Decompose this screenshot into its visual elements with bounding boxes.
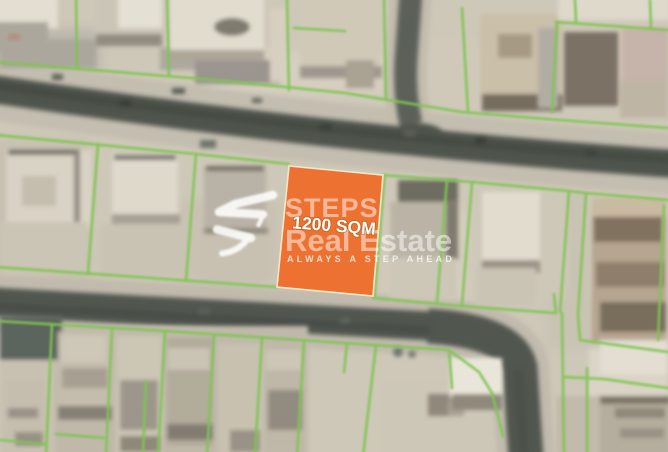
svg-text:ALWAYS A STEP AHEAD: ALWAYS A STEP AHEAD	[287, 254, 455, 264]
